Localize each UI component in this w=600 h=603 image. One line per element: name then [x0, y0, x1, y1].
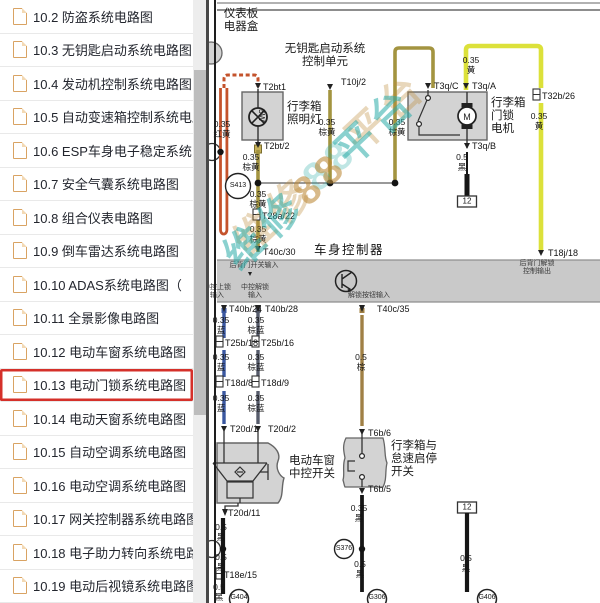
diagram-label: T10j/2 [341, 77, 366, 87]
toc-item-10.7[interactable]: 10.7 安全气囊系统电路图 [0, 168, 193, 202]
toc-item-label: 10.7 安全气囊系统电路图 [33, 174, 179, 193]
diagram-label: T2bt/2 [264, 141, 290, 151]
diagram-label: T3q/A [472, 81, 496, 91]
diagram-label: 0.35 棕蓝 [247, 353, 264, 372]
page-border-line [217, 2, 600, 4]
diagram-label: T3q/C [434, 81, 459, 91]
diagram-label: 0.35 棕蓝 [247, 394, 264, 413]
diagram-label: T18d/9 [261, 378, 289, 388]
diagram-label: 无钥匙启动系统 控制单元 [285, 43, 366, 69]
diagram-label: 0.5 黑 [354, 560, 366, 579]
toc-item-label: 10.4 发动机控制系统电路图 [33, 74, 192, 93]
diagram-label: S376 [336, 545, 352, 553]
toc-item-label: 10.8 组合仪表电路图 [33, 208, 153, 227]
toc-item-label: 10.6 ESP车身电子稳定系统电路图 [33, 141, 193, 160]
diagram-label: 0.5 黑 [215, 553, 227, 572]
diagram-label: 0.5 黑 [215, 523, 227, 542]
diagram-label: 车身控制器 [314, 243, 384, 257]
document-icon [13, 544, 27, 561]
diagram-label: T28a/22 [262, 211, 295, 221]
diagram-label: T18e/15 [224, 570, 257, 580]
svg-text:M: M [463, 112, 471, 122]
diagram-label: T25b/16 [261, 338, 294, 348]
diagram-label: T20d/1 [230, 424, 258, 434]
diagram-label: T25b/18 [225, 338, 258, 348]
toc-item-10.9[interactable]: 10.9 倒车雷达系统电路图 [0, 235, 193, 269]
document-icon [13, 75, 27, 92]
diagram-label: 0.35 棕蓝 [247, 316, 264, 335]
diagram-label: 5W [256, 109, 266, 122]
toc-item-label: 10.16 电动空调系统电路图 [33, 476, 186, 495]
diagram-label: G306 [368, 594, 385, 602]
toc-item-label: 10.15 自动空调系统电路图 [33, 442, 186, 461]
diagram-label: S413 [230, 182, 246, 190]
document-icon [13, 175, 27, 192]
diagram-label: 后背门解锁 控制输出 [520, 260, 555, 276]
toc-item-label: 10.2 防盗系统电路图 [33, 7, 153, 26]
toc-sidebar: 10.2 防盗系统电路图10.3 无钥匙启动系统电路图10.4 发动机控制系统电… [0, 0, 193, 603]
diagram-label: T6b/6 [368, 428, 391, 438]
toc-item-label: 10.17 网关控制器系统电路图 [33, 509, 193, 528]
toc-item-10.12[interactable]: 10.12 电动车窗系统电路图 [0, 335, 193, 369]
diagram-label: T6b/5 [368, 484, 391, 494]
diagram-label: T20d/2 [268, 424, 296, 434]
diagram-label: 12 [463, 196, 472, 205]
toc-item-label: 10.19 电动后视镜系统电路图 [33, 576, 193, 595]
diagram-label: 0.35 红黄 [213, 120, 230, 139]
toc-item-10.5[interactable]: 10.5 自动变速箱控制系统电路图 [0, 101, 193, 135]
toc-item-10.19[interactable]: 10.19 电动后视镜系统电路图 [0, 570, 193, 603]
toc-item-10.13[interactable]: 10.13 电动门锁系统电路图 [0, 369, 193, 403]
document-icon [13, 477, 27, 494]
diagram-label: 行李箱 门锁 电机 [491, 97, 526, 136]
toc-item-label: 10.11 全景影像电路图 [33, 308, 159, 327]
document-icon [13, 209, 27, 226]
toc-item-label: 10.12 电动车窗系统电路图 [33, 342, 186, 361]
panel-divider[interactable] [206, 0, 209, 603]
diagram-label: 行李箱 照明灯 [287, 101, 322, 127]
toc-item-10.16[interactable]: 10.16 电动空调系统电路图 [0, 469, 193, 503]
document-icon [13, 41, 27, 58]
toc-item-10.10[interactable]: 10.10 ADAS系统电路图（ [0, 268, 193, 302]
toc-item-label: 10.13 电动门锁系统电路图 [33, 375, 186, 394]
toc-item-10.15[interactable]: 10.15 自动空调系统电路图 [0, 436, 193, 470]
diagram-label: 解锁按钮输入 [348, 292, 390, 300]
diagram-label: T40c/35 [377, 304, 410, 314]
diagram-label: 电动车窗 中控开关 [289, 455, 335, 481]
toc-item-10.4[interactable]: 10.4 发动机控制系统电路图 [0, 67, 193, 101]
diagram-label: 后背门开关输入 [230, 262, 279, 270]
diagram-label: T3q/B [472, 141, 496, 151]
toc-item-label: 10.14 电动天窗系统电路图 [33, 409, 186, 428]
diagram-label: T32b/26 [542, 91, 575, 101]
diagram-label: T40b/28 [265, 304, 298, 314]
diagram-label: 0.35 黄 [531, 112, 548, 131]
diagram-label: 0.35 棕黄 [318, 118, 335, 137]
toc-item-label: 10.3 无钥匙启动系统电路图 [33, 40, 192, 59]
toc-item-label: 10.5 自动变速箱控制系统电路图 [33, 107, 193, 126]
toc-item-10.8[interactable]: 10.8 组合仪表电路图 [0, 201, 193, 235]
toc-item-10.3[interactable]: 10.3 无钥匙启动系统电路图 [0, 34, 193, 68]
diagram-label: 0.35 棕黄 [388, 118, 405, 137]
document-icon [13, 276, 27, 293]
document-icon [13, 577, 27, 594]
document-icon [13, 142, 27, 159]
page-border-line [217, 9, 600, 12]
toc-item-10.2[interactable]: 10.2 防盗系统电路图 [0, 0, 193, 34]
diagram-label: 0.5 黑 [460, 554, 472, 573]
diagram-label: 12 [463, 502, 472, 511]
toc-item-10.18[interactable]: 10.18 电子助力转向系统电路图 [0, 536, 193, 570]
toc-item-10.17[interactable]: 10.17 网关控制器系统电路图 [0, 503, 193, 537]
document-icon [13, 108, 27, 125]
toc-item-label: 10.10 ADAS系统电路图（ [33, 275, 182, 294]
toc-item-10.14[interactable]: 10.14 电动天窗系统电路图 [0, 402, 193, 436]
diagram-label: 0.35 棕黄 [242, 153, 259, 172]
document-icon [13, 343, 27, 360]
document-icon [13, 410, 27, 427]
diagram-label: 行李箱与 怠速启停 开关 [391, 440, 437, 479]
diagram-label: 0.35 黑 [351, 504, 368, 523]
diagram-label: G406 [478, 594, 495, 602]
diagram-label: 0.5 黑 [456, 153, 468, 172]
document-icon [13, 510, 27, 527]
diagram-label: 0.35 棕黄 [249, 225, 266, 244]
wiring-manual-viewer: M [0, 0, 600, 603]
document-icon [13, 8, 27, 25]
diagram-label: T18d/8 [225, 378, 253, 388]
page-edge-line [214, 0, 217, 603]
document-icon [13, 443, 27, 460]
diagram-label: 0.5 棕 [355, 353, 367, 372]
diagram-label: T20d/11 [228, 508, 260, 518]
diagram-label: T40b/24 [229, 304, 262, 314]
toc-item-label: 10.9 倒车雷达系统电路图 [33, 241, 179, 260]
toc-item-label: 10.18 电子助力转向系统电路图 [33, 543, 193, 562]
document-icon [13, 376, 27, 393]
diagram-label: T40c/30 [263, 247, 296, 257]
diagram-label: T2bt1 [263, 82, 286, 92]
diagram-label: G404 [230, 594, 247, 602]
sidebar-scrollbar-thumb[interactable] [194, 70, 206, 415]
toc-item-10.6[interactable]: 10.6 ESP车身电子稳定系统电路图 [0, 134, 193, 168]
diagram-label: 仪表板 电器盒 [224, 8, 259, 34]
diagram-label: 0.35 黄 [463, 56, 480, 75]
toc-item-10.11[interactable]: 10.11 全景影像电路图 [0, 302, 193, 336]
diagram-label: 0.35 棕黄 [249, 190, 266, 209]
diagram-label: T18j/18 [548, 248, 578, 258]
document-icon [13, 242, 27, 259]
diagram-label: 中控解锁 输入 [241, 284, 269, 300]
document-icon [13, 309, 27, 326]
